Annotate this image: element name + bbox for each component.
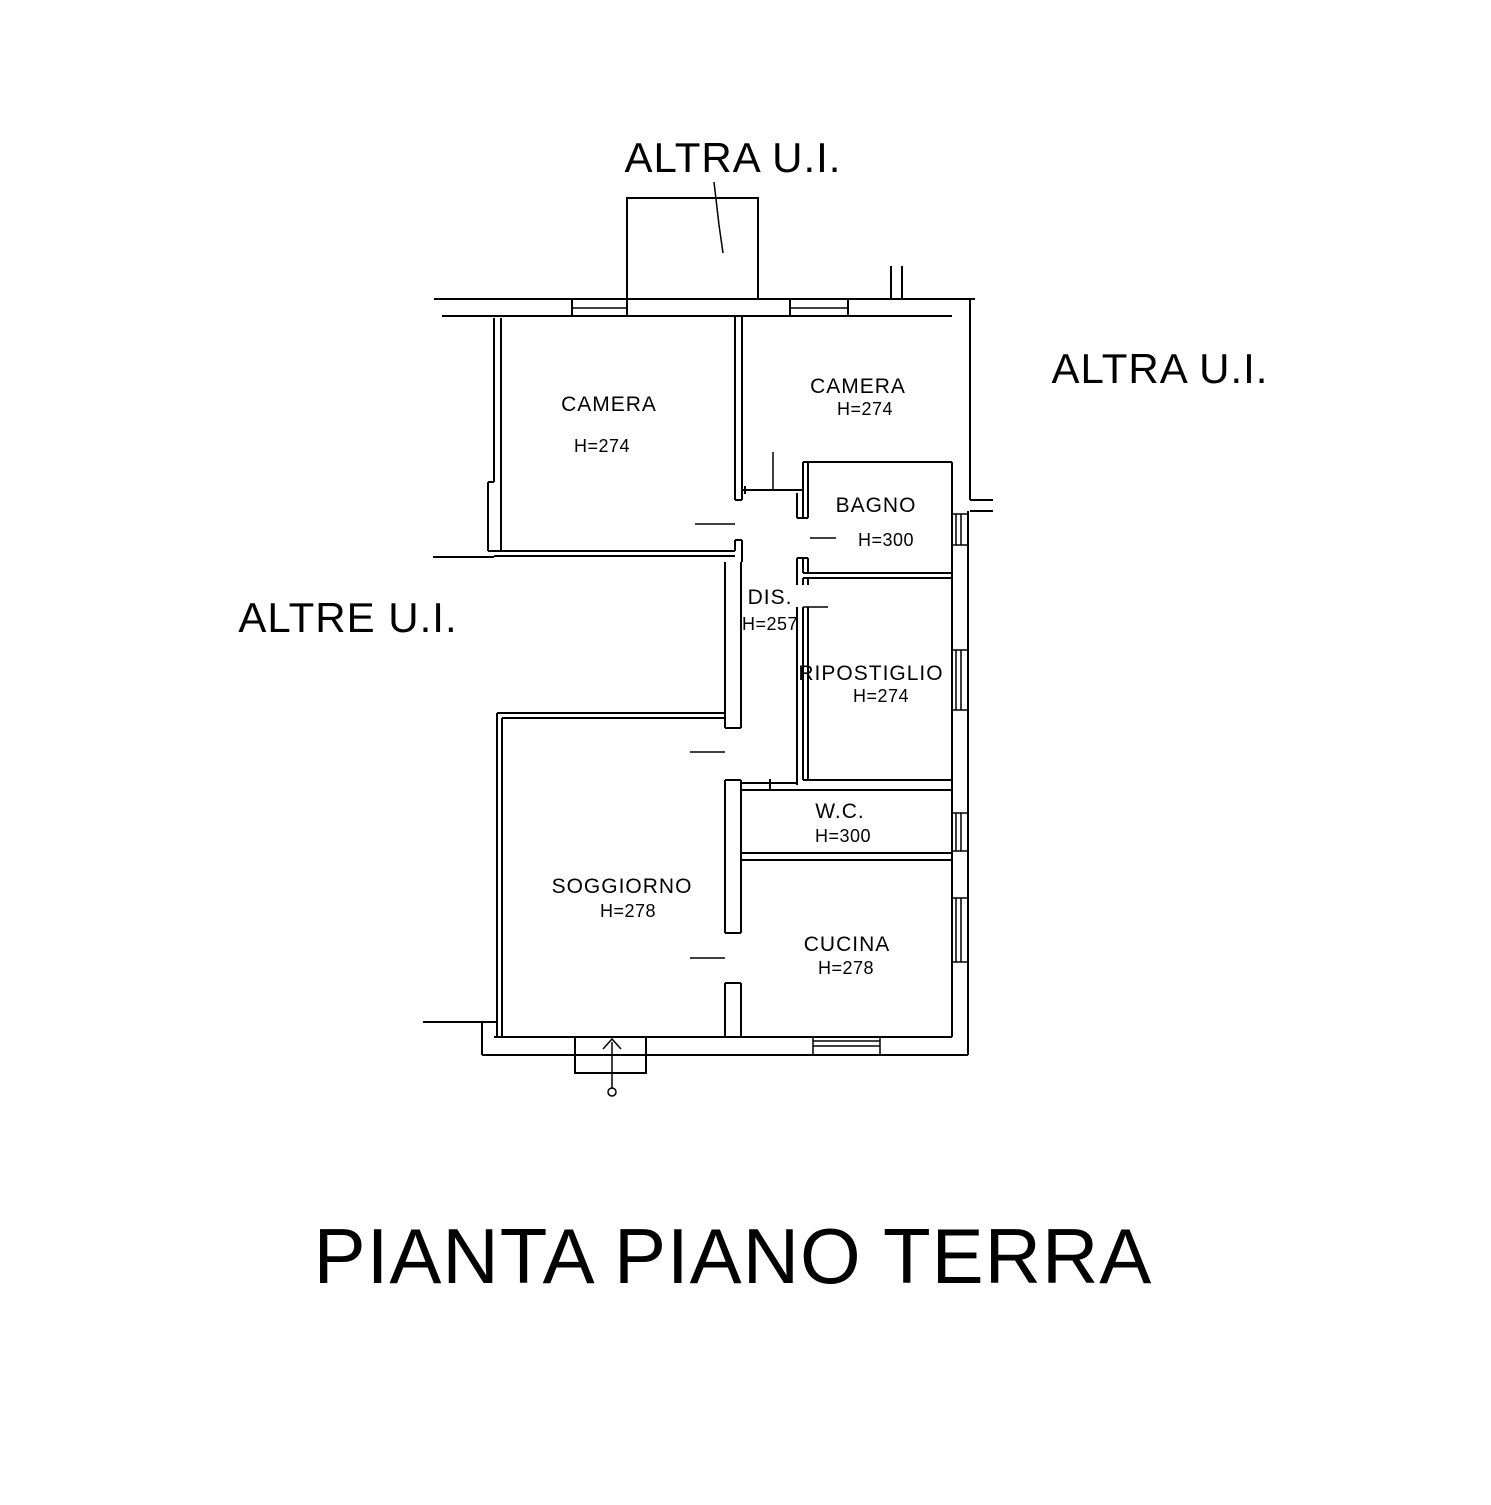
annotation-left: ALTRE U.I. <box>238 594 457 641</box>
svg-text:H=274: H=274 <box>574 436 630 456</box>
wall-stub-top <box>891 266 902 299</box>
neighbor-unit-box <box>627 198 758 299</box>
svg-text:CUCINA: CUCINA <box>804 933 891 956</box>
room-label-ripostiglio: RIPOSTIGLIO H=274 <box>798 662 943 706</box>
annotation-top: ALTRA U.I. <box>625 134 842 181</box>
svg-text:H=300: H=300 <box>858 530 914 550</box>
svg-text:RIPOSTIGLIO: RIPOSTIGLIO <box>798 662 943 685</box>
room-label-soggiorno: SOGGIORNO H=278 <box>552 875 693 921</box>
svg-text:H=300: H=300 <box>815 826 871 846</box>
floor-plan-svg: ALTRA U.I. ALTRA U.I. ALTRE U.I. CAMERA … <box>0 0 1491 1500</box>
svg-text:CAMERA: CAMERA <box>561 393 657 416</box>
room-label-camera-1: CAMERA H=274 <box>561 393 657 456</box>
exterior-walls <box>423 198 993 1073</box>
annotation-right: ALTRA U.I. <box>1052 345 1269 392</box>
svg-text:W.C.: W.C. <box>815 800 865 823</box>
leader-line <box>714 182 723 253</box>
svg-text:CAMERA: CAMERA <box>810 375 906 398</box>
floor-plan-page: ALTRA U.I. ALTRA U.I. ALTRE U.I. CAMERA … <box>0 0 1491 1500</box>
page-title: PIANTA PIANO TERRA <box>314 1212 1153 1300</box>
svg-text:H=274: H=274 <box>837 399 893 419</box>
room-label-camera-2: CAMERA H=274 <box>810 375 906 419</box>
room-label-cucina: CUCINA H=278 <box>804 933 891 978</box>
svg-text:DIS.: DIS. <box>748 586 793 609</box>
svg-text:H=278: H=278 <box>818 958 874 978</box>
entrance-arrow <box>603 1039 621 1096</box>
room-label-bagno: BAGNO H=300 <box>836 494 917 550</box>
room-label-wc: W.C. H=300 <box>815 800 871 846</box>
room-label-dis: DIS. H=257 <box>742 586 798 634</box>
svg-text:H=257: H=257 <box>742 614 798 634</box>
svg-text:SOGGIORNO: SOGGIORNO <box>552 875 693 898</box>
svg-text:H=278: H=278 <box>600 901 656 921</box>
svg-text:H=274: H=274 <box>853 686 909 706</box>
svg-text:BAGNO: BAGNO <box>836 494 917 517</box>
doors <box>690 452 836 958</box>
